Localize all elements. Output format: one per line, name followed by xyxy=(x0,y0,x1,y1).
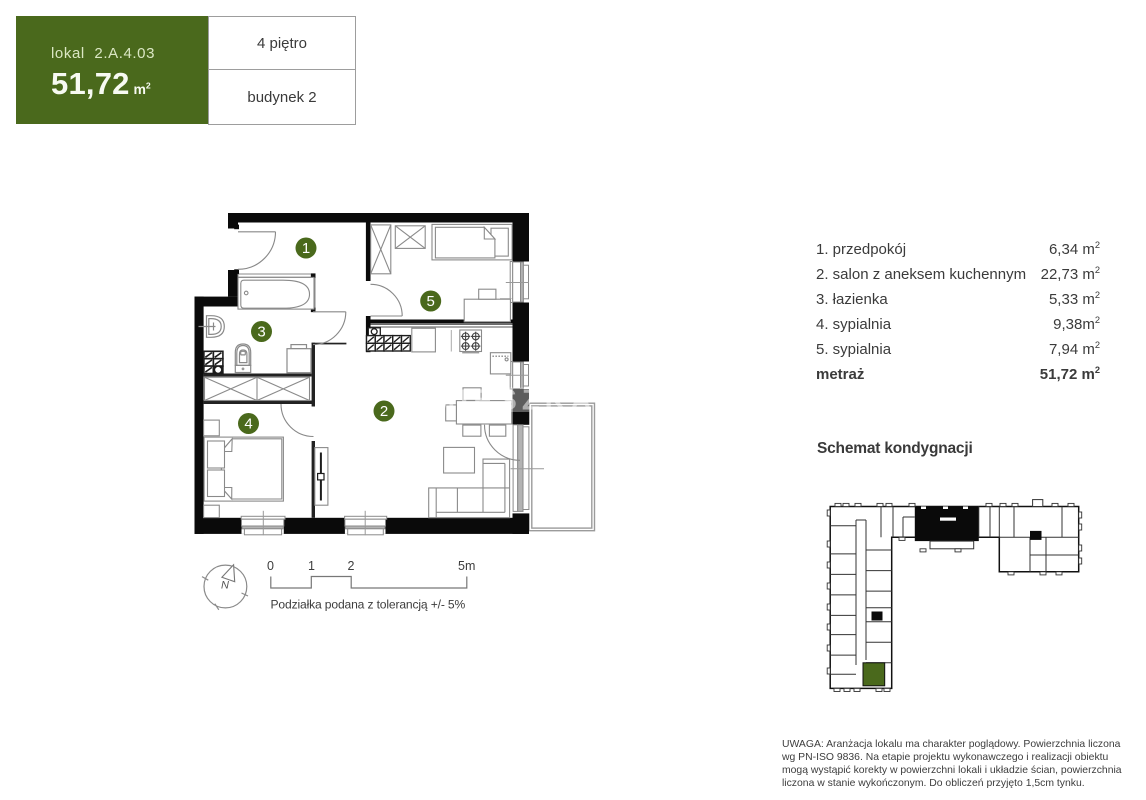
svg-text:MIESZKANIA: MIESZKANIA xyxy=(431,385,661,417)
